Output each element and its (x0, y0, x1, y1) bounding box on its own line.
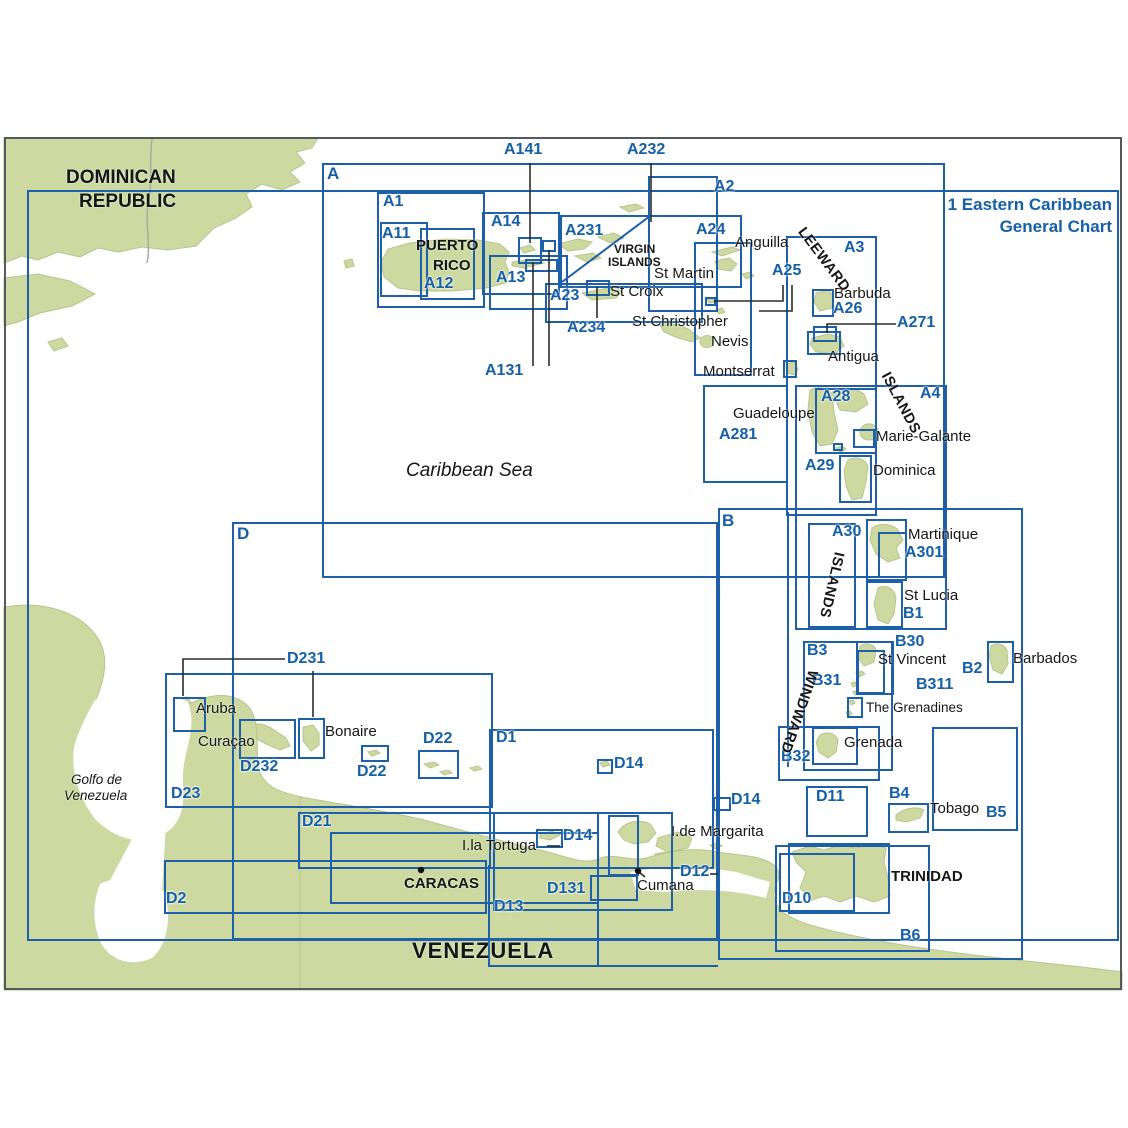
chart-extent-b2-box (987, 641, 1014, 683)
chart-code-b4: B4 (889, 786, 909, 803)
chart-code-b311: B311 (916, 677, 953, 694)
general-chart-title-line2: General Chart (948, 216, 1112, 238)
chart-code-a28: A28 (821, 389, 850, 406)
chart-code-a281: A281 (719, 427, 757, 444)
label-venezuela: VENEZUELA (412, 939, 554, 963)
chart-code-a11: A11 (382, 226, 410, 243)
label-anguilla: Anguilla (735, 235, 788, 252)
chart-extent-harbour-2 (525, 259, 558, 272)
chart-extent-bonaire-box (298, 718, 325, 759)
chart-extent-montserrat-box (783, 360, 797, 378)
chart-extent-a29 (839, 455, 872, 503)
chart-code-b30: B30 (895, 634, 924, 651)
label-golfo-1: Golfo de (71, 773, 122, 788)
chart-code-a30: A30 (832, 524, 861, 541)
chart-extent-a301 (878, 532, 907, 578)
chart-extent-cumana-box (608, 815, 639, 876)
label-st-lucia: St Lucia (904, 588, 958, 605)
chart-code-a24: A24 (696, 222, 725, 239)
chart-code-a23: A23 (550, 288, 579, 305)
chart-index-map: A A1 A11 A12 A13 A14 A141 A131 A2 A23 A2… (0, 0, 1128, 1128)
label-grenadines: The Grenadines (866, 701, 963, 716)
label-nevis: Nevis (711, 334, 749, 351)
label-republic: REPUBLIC (79, 192, 176, 213)
chart-extent-a234-target (586, 280, 610, 296)
label-dominica: Dominica (873, 463, 936, 480)
chart-extent-a25-target (705, 297, 716, 306)
chart-extent-harbour-3 (833, 443, 843, 451)
label-st-christopher: St Christopher (632, 314, 728, 331)
chart-code-a12: A12 (424, 276, 453, 293)
label-caracas: CARACAS (404, 876, 479, 893)
chart-code-b6: B6 (900, 928, 920, 945)
chart-code-a2: A2 (714, 179, 734, 196)
chart-extent-b4-box (888, 803, 929, 833)
label-dominican: DOMINICAN (66, 168, 176, 189)
label-puerto: PUERTO (416, 238, 478, 255)
chart-code-d: D (237, 525, 249, 543)
label-st-vincent: St Vincent (878, 652, 946, 669)
label-curacao: Curaçao (198, 734, 255, 751)
chart-code-a26: A26 (833, 301, 862, 318)
chart-code-d11: D11 (816, 789, 844, 806)
chart-code-d14-frailes: D14 (731, 792, 760, 809)
chart-code-a4: A4 (920, 386, 940, 403)
label-barbados: Barbados (1013, 651, 1077, 668)
label-bonaire: Bonaire (325, 724, 377, 741)
chart-code-a13: A13 (496, 270, 525, 287)
chart-code-b2: B2 (962, 661, 982, 678)
chart-code-d22-east: D22 (423, 731, 452, 748)
chart-code-a29: A29 (805, 458, 834, 475)
chart-code-d231: D231 (287, 651, 325, 668)
chart-extent-a24 (694, 242, 752, 376)
chart-extent-marie-galante-box (853, 429, 875, 448)
chart-extent-d22-east-box (418, 750, 459, 779)
chart-extent-harbour-1 (542, 240, 556, 252)
chart-code-d131: D131 (547, 881, 585, 898)
chart-code-d14-blanquilla: D14 (614, 756, 643, 773)
chart-code-d2: D2 (166, 891, 186, 908)
general-chart-title: 1 Eastern Caribbean General Chart (948, 194, 1112, 238)
label-margarita: I.de Margarita (671, 824, 764, 841)
chart-code-d23: D23 (171, 786, 200, 803)
chart-code-a141: A141 (504, 142, 542, 159)
label-martinique: Martinique (908, 527, 978, 544)
chart-code-b1: B1 (903, 606, 923, 623)
chart-code-b3: B3 (807, 643, 827, 660)
chart-extent-d14-frailes (713, 797, 731, 811)
chart-extent-a271-target (813, 326, 837, 342)
label-virgin-islands: ISLANDS (608, 256, 661, 269)
chart-code-d10: D10 (782, 891, 811, 908)
label-trinidad: TRINIDAD (891, 869, 963, 886)
label-tortuga: I.la Tortuga (462, 838, 536, 855)
label-marie-galante: Marie-Galante (876, 429, 971, 446)
chart-code-d14-tortuga: D14 (563, 828, 592, 845)
label-aruba: Aruba (196, 701, 236, 718)
chart-extent-d14-blanquilla (597, 759, 613, 774)
label-guadeloupe: Guadeloupe (733, 406, 815, 423)
label-rico: RICO (433, 258, 471, 275)
chart-extent-d14-tortuga (536, 829, 563, 848)
chart-code-d1: D1 (496, 730, 516, 747)
chart-code-a25: A25 (772, 263, 801, 280)
chart-code-a1: A1 (383, 194, 403, 211)
label-montserrat: Montserrat (703, 364, 775, 381)
label-cumana: Cumana (637, 878, 694, 895)
chart-code-a232: A232 (627, 142, 665, 159)
chart-code-d13: D13 (494, 899, 523, 916)
chart-code-b: B (722, 512, 734, 530)
chart-code-a234: A234 (567, 320, 605, 337)
chart-code-d232: D232 (240, 759, 278, 776)
general-chart-title-line1: 1 Eastern Caribbean (948, 194, 1112, 216)
label-st-croix: St Croix (610, 284, 663, 301)
label-antigua: Antigua (828, 349, 879, 366)
chart-extent-d22-west-box (361, 745, 389, 762)
chart-code-d21: D21 (302, 814, 331, 831)
chart-code-a271: A271 (897, 315, 935, 332)
chart-code-a231: A231 (565, 223, 603, 240)
chart-code-b5: B5 (986, 805, 1006, 822)
chart-code-a131: A131 (485, 363, 523, 380)
chart-code-a: A (327, 165, 339, 183)
chart-extent-a26 (812, 289, 834, 317)
label-tobago: Tobago (930, 801, 979, 818)
chart-code-a14: A14 (491, 214, 520, 231)
chart-extent-b1-box (866, 581, 903, 628)
label-caribbean-sea: Caribbean Sea (406, 461, 533, 482)
chart-extent-b311-target (847, 697, 863, 718)
chart-extent-d131-box (590, 875, 638, 901)
label-grenada: Grenada (844, 735, 902, 752)
label-golfo-2: Venezuela (64, 789, 127, 804)
chart-code-a301: A301 (905, 545, 943, 562)
chart-code-d22-west: D22 (357, 764, 386, 781)
chart-code-a3: A3 (844, 240, 864, 257)
label-st-martin: St Martin (654, 266, 714, 283)
